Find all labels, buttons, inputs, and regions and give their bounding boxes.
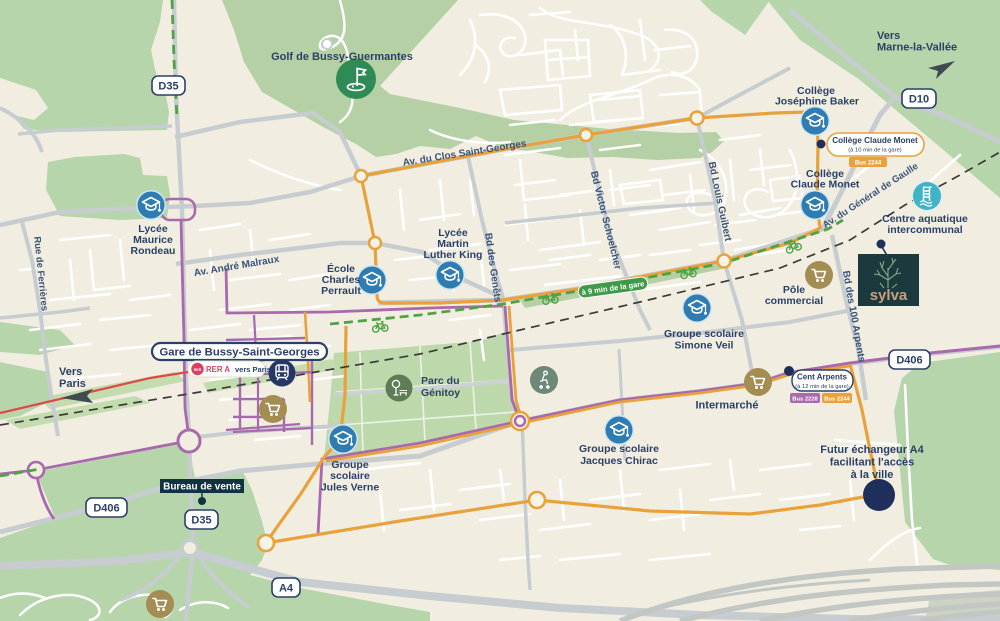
svg-text:Claude Monet: Claude Monet [791,179,860,191]
svg-text:Luther King: Luther King [424,249,483,261]
svg-text:D35: D35 [191,515,211,527]
svg-text:D406: D406 [896,355,922,367]
svg-text:RER A: RER A [206,365,230,374]
svg-text:Golf de Bussy-Guermantes: Golf de Bussy-Guermantes [271,51,413,63]
svg-text:RER: RER [194,368,202,372]
svg-text:Rondeau: Rondeau [131,245,176,257]
svg-text:Bureau de vente: Bureau de vente [163,482,241,493]
svg-text:Jacques Chirac: Jacques Chirac [580,455,658,467]
svg-text:Marne-la-Vallée: Marne-la-Vallée [877,42,957,54]
svg-text:facilitant l'accès: facilitant l'accès [830,457,915,469]
svg-text:Paris: Paris [59,378,86,390]
svg-text:Gare de Bussy-Saint-Georges: Gare de Bussy-Saint-Georges [159,347,319,359]
svg-text:Vers: Vers [877,30,900,42]
svg-text:Groupe scolaire: Groupe scolaire [664,328,744,340]
svg-text:(à 10 min de la gare): (à 10 min de la gare) [848,148,902,154]
svg-text:Perrault: Perrault [321,285,361,297]
svg-text:Jules Verne: Jules Verne [321,482,380,494]
svg-text:Bus 2244: Bus 2244 [855,161,882,167]
svg-text:intercommunal: intercommunal [887,224,962,236]
svg-text:Joséphine Baker: Joséphine Baker [775,96,859,108]
svg-text:Bus 2228: Bus 2228 [792,397,818,403]
svg-text:Collège Claude Monet: Collège Claude Monet [832,136,918,145]
svg-text:A4: A4 [279,583,294,595]
svg-text:D35: D35 [158,81,178,93]
svg-text:Parc du: Parc du [421,375,460,387]
svg-text:sylva: sylva [870,287,908,304]
svg-text:Cent Arpents: Cent Arpents [797,373,847,382]
svg-text:à la ville: à la ville [851,469,894,481]
svg-text:Bus 2244: Bus 2244 [824,397,850,403]
svg-text:Vers: Vers [59,366,82,378]
svg-text:(à 12 min de la gare): (à 12 min de la gare) [795,384,849,390]
svg-text:Simone Veil: Simone Veil [675,340,734,352]
svg-text:vers Paris: vers Paris [235,365,271,374]
svg-text:Groupe scolaire: Groupe scolaire [579,443,659,455]
svg-text:Futur échangeur A4: Futur échangeur A4 [820,444,924,456]
svg-text:Génitoy: Génitoy [421,387,460,399]
svg-text:D406: D406 [93,503,119,515]
svg-text:D10: D10 [909,94,929,106]
svg-text:Intermarché: Intermarché [696,400,759,412]
svg-text:scolaire: scolaire [330,470,370,482]
svg-text:commercial: commercial [765,295,823,307]
